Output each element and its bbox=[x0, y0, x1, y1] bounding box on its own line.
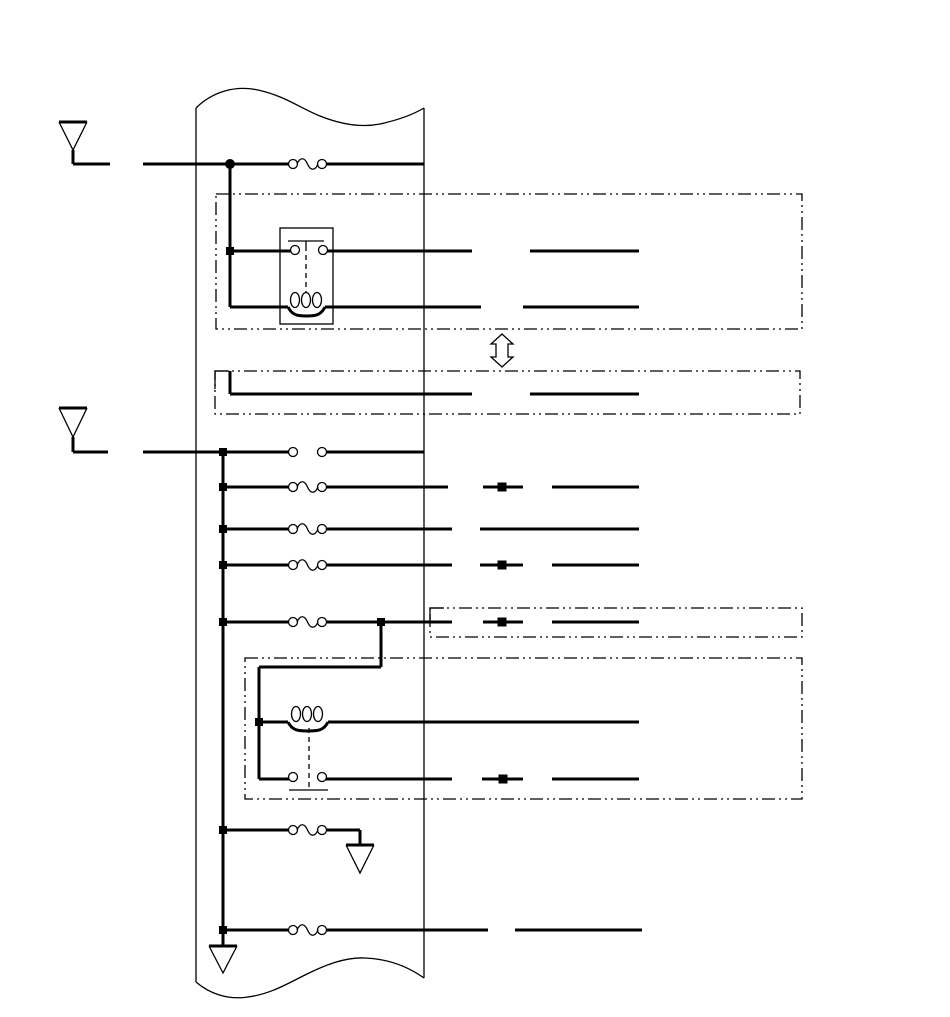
fuse-terminal bbox=[318, 561, 327, 570]
schematic-canvas bbox=[0, 0, 950, 1017]
antenna-top-icon bbox=[59, 122, 87, 150]
fuse-terminal bbox=[289, 926, 298, 935]
fuse-element bbox=[297, 482, 318, 493]
fuse-element bbox=[297, 617, 318, 628]
wire-node-square bbox=[499, 775, 508, 784]
relay-contact-hook bbox=[289, 773, 298, 782]
fuse-terminal bbox=[318, 826, 327, 835]
fuse-terminal bbox=[289, 561, 298, 570]
fuse-terminal bbox=[289, 525, 298, 534]
coil-loop bbox=[314, 707, 323, 722]
coil-loop bbox=[313, 293, 322, 308]
top-break-wave bbox=[196, 88, 424, 125]
junction-square bbox=[255, 718, 263, 726]
enclosure-corner bbox=[430, 608, 444, 622]
ground-main-icon bbox=[209, 946, 237, 973]
relay-contact-hook bbox=[318, 773, 327, 782]
relay-contact-hook bbox=[291, 246, 300, 255]
fuse-terminal bbox=[289, 160, 298, 169]
wire-node-square bbox=[498, 561, 507, 570]
fuse-element bbox=[297, 560, 318, 571]
fuse-terminal bbox=[318, 160, 327, 169]
connector-terminal bbox=[318, 448, 327, 457]
wire-node-square bbox=[498, 618, 507, 627]
fuse-element bbox=[297, 159, 318, 170]
fuse-element bbox=[297, 925, 318, 936]
fuse-terminal bbox=[289, 618, 298, 627]
fuse-terminal bbox=[318, 926, 327, 935]
ground-branch-icon bbox=[346, 845, 374, 873]
junction-square bbox=[219, 561, 227, 569]
fuse-terminal bbox=[289, 826, 298, 835]
fuse-element bbox=[297, 524, 318, 535]
junction-square bbox=[219, 826, 227, 834]
double-arrow-icon bbox=[491, 334, 513, 367]
coil-wire-dip bbox=[288, 722, 328, 731]
coil-loop bbox=[303, 707, 312, 722]
junction-dot bbox=[225, 159, 235, 169]
relay-contact-hook bbox=[319, 246, 328, 255]
junction-square bbox=[377, 618, 385, 626]
coil-loop bbox=[291, 293, 300, 308]
junction-square bbox=[219, 525, 227, 533]
dashed-enclosure bbox=[216, 194, 802, 329]
coil-loop bbox=[302, 293, 311, 308]
bottom-break-wave bbox=[196, 958, 424, 998]
fuse-terminal bbox=[318, 525, 327, 534]
fuse-terminal bbox=[318, 483, 327, 492]
fuse-element bbox=[297, 825, 318, 836]
coil-wire-dip bbox=[288, 307, 325, 316]
wiring-diagram-page bbox=[0, 0, 950, 1017]
junction-square bbox=[219, 618, 227, 626]
antenna-middle-icon bbox=[59, 408, 87, 437]
junction-square bbox=[219, 448, 227, 456]
enclosure-corner bbox=[215, 371, 229, 389]
junction-square bbox=[219, 483, 227, 491]
wire-node-square bbox=[498, 483, 507, 492]
fuse-terminal bbox=[318, 618, 327, 627]
fuse-terminal bbox=[289, 483, 298, 492]
junction-square bbox=[219, 926, 227, 934]
junction-square bbox=[226, 247, 234, 255]
connector-terminal bbox=[289, 448, 298, 457]
coil-loop bbox=[292, 707, 301, 722]
